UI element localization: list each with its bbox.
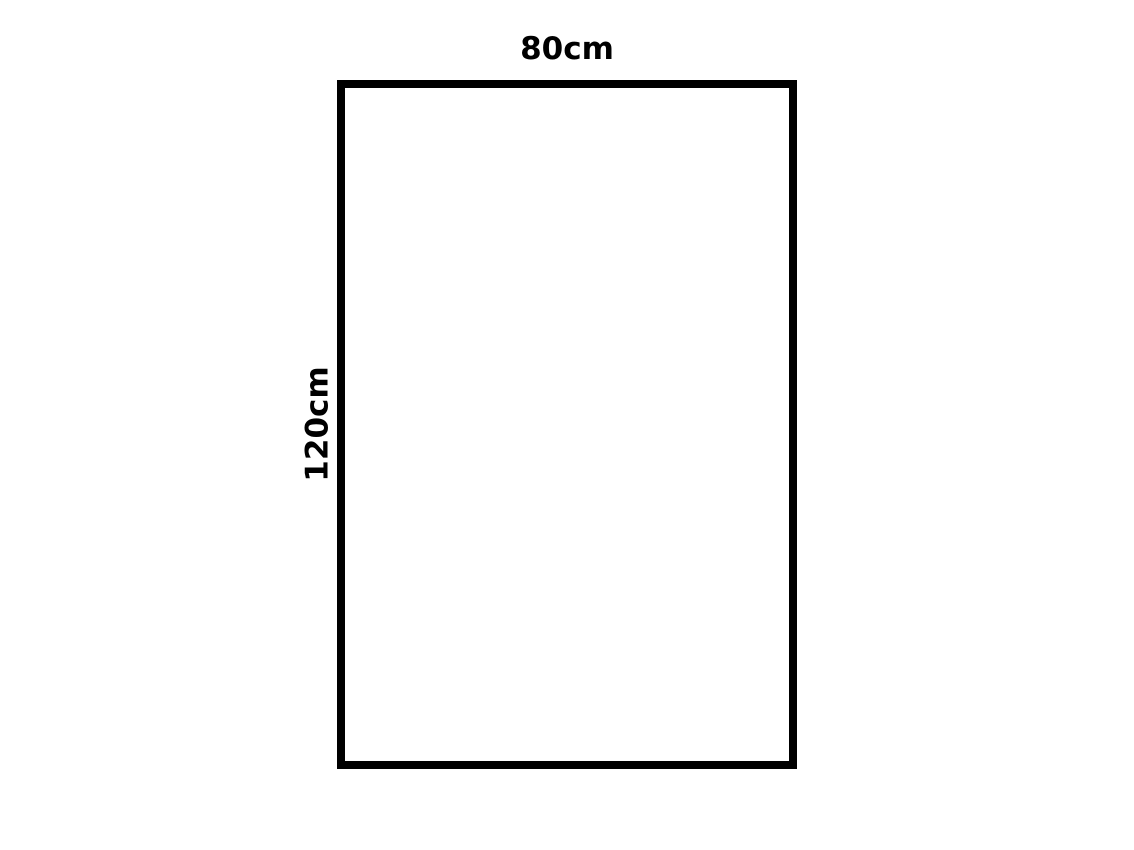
width-dimension-label: 80cm [337,34,797,65]
height-dimension-label: 120cm [303,366,334,481]
diagram-canvas: 80cm 120cm [0,0,1134,850]
rectangle-shape [337,80,797,769]
